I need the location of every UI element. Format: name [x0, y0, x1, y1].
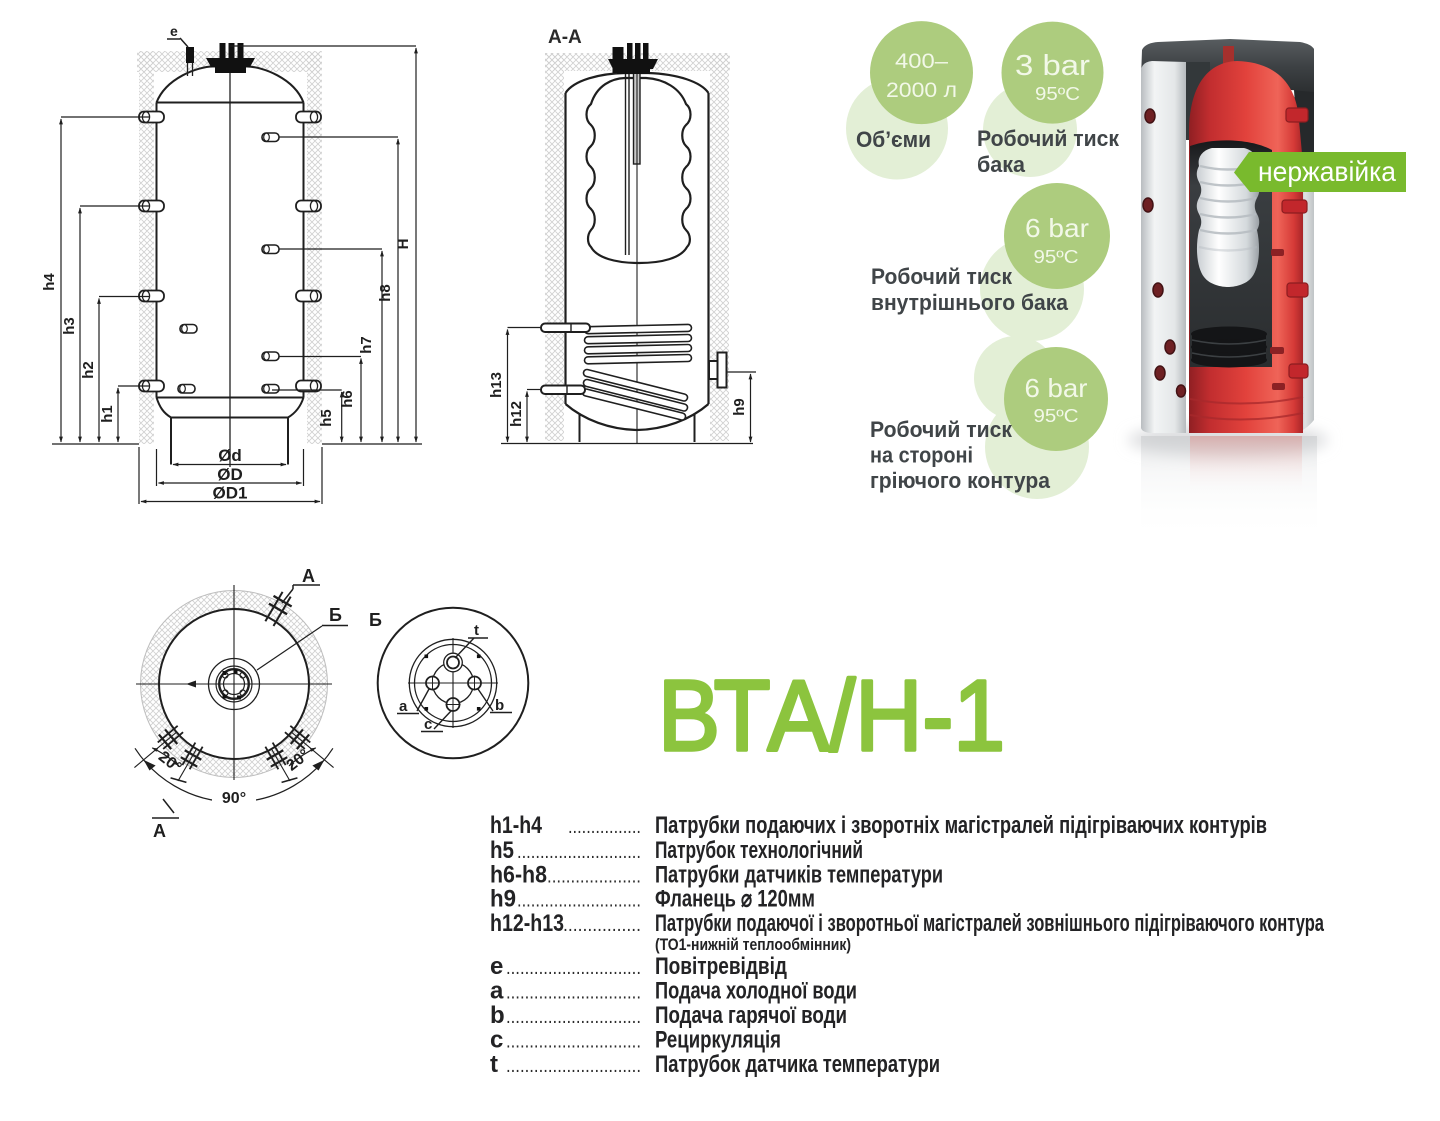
- svg-text:b: b: [495, 697, 504, 714]
- svg-text:b: b: [490, 1002, 505, 1029]
- svg-text:Об’єми: Об’єми: [856, 127, 931, 152]
- svg-text:90°: 90°: [222, 790, 246, 807]
- svg-text:...........................: ...........................: [517, 891, 641, 912]
- svg-text:.............................: .............................: [506, 1007, 641, 1028]
- svg-text:...........................: ...........................: [517, 842, 641, 863]
- svg-text:Ød: Ød: [218, 446, 242, 465]
- svg-text:.............................: .............................: [506, 1056, 641, 1077]
- svg-text:t: t: [490, 1051, 498, 1078]
- svg-text:3 bar: 3 bar: [1015, 50, 1090, 82]
- svg-text:ØD1: ØD1: [213, 484, 248, 503]
- svg-text:Б: Б: [329, 605, 342, 625]
- svg-text:Патрубки подаючих і зворотніх: Патрубки подаючих і зворотніх магістрале…: [655, 812, 1267, 839]
- svg-text:t: t: [474, 622, 479, 639]
- svg-text:Патрубок датчика температури: Патрубок датчика температури: [655, 1051, 940, 1078]
- svg-text:нержавійка: нержавійка: [1258, 156, 1396, 187]
- svg-text:Патрубок технологічний: Патрубок технологічний: [655, 837, 863, 864]
- svg-text:................: ................: [568, 817, 641, 838]
- svg-text:A: A: [302, 566, 315, 586]
- svg-text:Патрубки подаючої і зворотньо: Патрубки подаючої і зворотньої магістрал…: [655, 910, 1324, 937]
- svg-text:Б: Б: [369, 610, 382, 630]
- svg-text:95ºC: 95ºC: [1035, 84, 1080, 104]
- svg-text:Фланець ⌀ 120мм: Фланець ⌀ 120мм: [655, 886, 815, 913]
- svg-text:.............................: .............................: [506, 958, 641, 979]
- svg-text:h7: h7: [358, 336, 375, 354]
- svg-text:h12: h12: [508, 401, 525, 427]
- svg-text:Робочий тиск: Робочий тиск: [870, 417, 1013, 442]
- svg-text:.............................: .............................: [506, 1032, 641, 1053]
- svg-text:(ТО1-нижній теплообмінник): (ТО1-нижній теплообмінник): [655, 935, 851, 954]
- svg-text:гріючого контура: гріючого контура: [870, 468, 1051, 493]
- svg-text:h9: h9: [731, 398, 748, 416]
- svg-text:h6: h6: [339, 390, 356, 408]
- svg-text:c: c: [490, 1027, 503, 1054]
- svg-text:бака: бака: [977, 152, 1026, 177]
- svg-text:h4: h4: [41, 273, 58, 291]
- svg-text:e: e: [490, 953, 503, 980]
- svg-text:ØD: ØD: [217, 465, 243, 484]
- svg-text:2000 л: 2000 л: [886, 79, 957, 102]
- svg-text:Повітревідвід: Повітревідвід: [655, 953, 787, 980]
- svg-text:h3: h3: [61, 317, 78, 335]
- svg-text:Робочий тиск: Робочий тиск: [977, 126, 1120, 151]
- svg-text:H: H: [395, 239, 412, 250]
- svg-text:e: e: [170, 23, 178, 39]
- svg-text:a: a: [399, 698, 408, 715]
- svg-text:h9: h9: [490, 886, 516, 913]
- svg-text:h13: h13: [488, 372, 505, 398]
- svg-text:h5: h5: [490, 837, 514, 864]
- svg-text:внутрішнього бака: внутрішнього бака: [871, 290, 1069, 315]
- svg-text:h1: h1: [99, 405, 116, 423]
- svg-text:95ºC: 95ºC: [1034, 406, 1079, 426]
- svg-text:Подача холодної води: Подача холодної води: [655, 978, 857, 1005]
- svg-text:.............................: .............................: [506, 983, 641, 1004]
- svg-text:a: a: [490, 978, 504, 1005]
- svg-text:6 bar: 6 bar: [1025, 213, 1089, 243]
- svg-text:................: ................: [563, 915, 641, 936]
- svg-text:A: A: [153, 821, 166, 841]
- svg-text:Робочий тиск: Робочий тиск: [871, 264, 1013, 289]
- svg-text:A-A: A-A: [548, 27, 582, 48]
- svg-text:h6-h8: h6-h8: [490, 862, 547, 889]
- svg-text:h5: h5: [318, 409, 335, 427]
- svg-text:c: c: [424, 716, 432, 733]
- svg-text:Рециркуляція: Рециркуляція: [655, 1027, 781, 1054]
- svg-text:ВТА/Н-1: ВТА/Н-1: [658, 660, 1005, 772]
- svg-text:h12-h13: h12-h13: [490, 910, 564, 937]
- svg-text:h1-h4: h1-h4: [490, 812, 543, 839]
- svg-text:....................: ....................: [547, 867, 641, 888]
- svg-text:Патрубки датчиків температури: Патрубки датчиків температури: [655, 862, 943, 889]
- svg-text:Подача гарячої води: Подача гарячої води: [655, 1002, 847, 1029]
- svg-text:6 bar: 6 bar: [1025, 373, 1088, 403]
- svg-text:95ºC: 95ºC: [1034, 247, 1079, 267]
- svg-text:на стороні: на стороні: [870, 443, 973, 468]
- svg-text:h2: h2: [80, 361, 97, 379]
- svg-text:400–: 400–: [895, 50, 948, 73]
- svg-text:h8: h8: [377, 284, 394, 302]
